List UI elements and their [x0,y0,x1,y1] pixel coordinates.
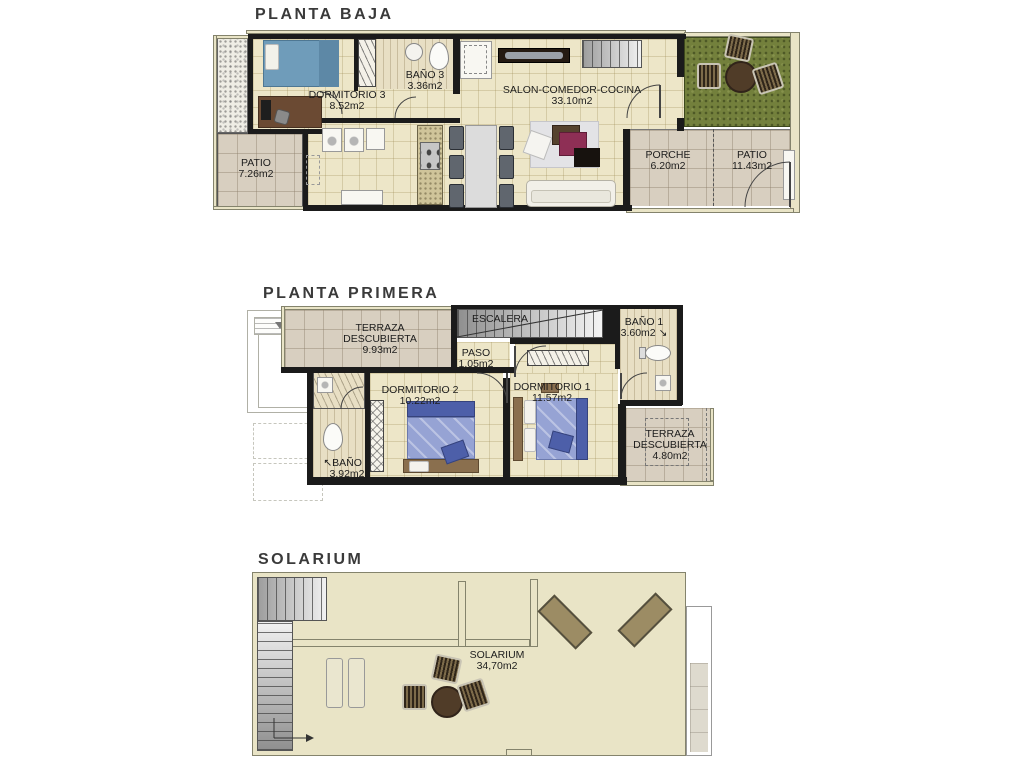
plan-planta-baja: DORMITORIO 3 8.52m2 BAÑO 3 3.36m2 SALON-… [213,30,805,218]
shower-dashed-outline [464,45,487,74]
dining-chair-icon [499,126,514,150]
porche-patio-divider [713,129,714,206]
washer-icon [322,128,342,152]
bed-blanket-fold [319,40,339,87]
exterior-wall-band [213,35,251,39]
exterior-wall-band [281,306,463,310]
room-area-line: 3.60m2 ↘ [621,328,668,339]
stairs-icon [257,621,293,751]
room-label-bano3: BAÑO 3 3.36m2 [406,70,445,92]
stairs-icon [582,40,642,68]
wall [307,369,313,481]
floor-title-planta-primera: PLANTA PRIMERA [263,285,439,303]
dining-chair-icon [449,184,464,208]
washer-icon [344,128,364,152]
gravel-strip [217,38,248,133]
dining-chair-icon [499,184,514,208]
chair-icon [431,653,463,684]
wall [615,309,620,369]
sink-icon [655,375,671,391]
tv-unit-icon [574,148,600,167]
exterior-wall-band [626,208,794,213]
bed-blanket-fold [576,398,588,460]
room-area: 3.36m2 [406,81,445,92]
room-area: 7.26m2 [238,169,273,180]
wall [248,129,326,134]
wall [623,129,630,208]
room-label-porche: PORCHE 6.20m2 [646,150,691,172]
exterior-wall-band [213,206,305,210]
floor-title-planta-baja: PLANTA BAJA [255,6,394,24]
pillow-icon [524,428,536,452]
wardrobe-icon [358,39,376,87]
sink-icon [405,43,423,61]
room-area: 33.10m2 [503,96,641,107]
sun-lounger-icon [348,658,365,708]
parapet-band [506,749,532,756]
door-opening-dashed [306,155,320,185]
parapet-band [530,579,538,647]
door-recess [783,150,795,200]
room-label-dormitorio1: DORMITORIO 1 11.57m2 [514,382,591,404]
chair-icon [402,684,427,710]
room-label-patio-left: PATIO 7.26m2 [238,158,273,180]
dining-chair-icon [449,155,464,179]
room-area: 10.22m2 [382,396,459,407]
room-area: 9.93m2 [343,345,417,356]
laundry-sink-icon [341,190,383,205]
plan-planta-primera: TERRAZA DESCUBIERTA 9.93m2 ESCALERA PASO… [245,305,720,510]
appliance-icon [366,128,385,150]
exterior-wall-band [281,306,285,372]
room-area: 1.05m2 [458,359,493,370]
room-label-bano2: ↖BAÑO 2 3.92m2 [323,458,370,480]
pillow-icon [409,461,429,472]
room-area: 34,70m2 [470,661,525,672]
wall [248,34,253,134]
wall [503,367,510,373]
roof-extension-floor [690,663,708,752]
door-swing-arrow-icon: ↘ [659,327,668,339]
room-label-paso: PASO 1.05m2 [458,348,493,370]
room-area: 6.20m2 [646,161,691,172]
bed-headboard [513,397,523,461]
room-name: ESCALERA [472,314,528,325]
room-label-terraza-der: TERRAZA DESCUBIERTA 4.80m2 [633,429,707,462]
wall [308,118,460,123]
dining-table-icon [465,125,497,208]
sofa-seat [531,190,611,203]
sink-icon [317,377,333,393]
wall [453,34,460,94]
wall [510,338,620,344]
room-label-patio-right: PATIO 11.43m2 [732,150,772,172]
exterior-wall-band [710,408,714,481]
wall [618,404,626,483]
pillow-icon [265,44,279,70]
toilet-icon [429,42,449,70]
floor-title-solarium: SOLARIUM [258,551,363,569]
exterior-wall-band [213,35,217,210]
floorplan-canvas: PLANTA BAJA PLANTA PRIMERA SOLARIUM [0,0,1024,768]
wall [248,34,686,39]
room-label-dormitorio2: DORMITORIO 2 10.22m2 [382,385,459,407]
wall [677,309,683,405]
room-label-dormitorio3: DORMITORIO 3 8.52m2 [309,90,386,112]
plan-solarium: SOLARIUM 34,70m2 [250,568,715,760]
room-area: 4.80m2 [633,451,707,462]
stairs-icon [257,577,327,621]
parapet-band [290,639,530,647]
kitchen-bar-top [505,52,563,59]
room-area: 3.60m2 [621,327,656,339]
round-table-icon [725,61,757,93]
parapet-band [458,581,466,647]
wall [503,378,510,477]
wall [677,34,684,77]
room-area: 11.43m2 [732,161,772,172]
room-area: 8.52m2 [309,101,386,112]
room-label-bano1: BAÑO 1 3.60m2 ↘ [621,317,668,339]
sun-lounger-icon [326,658,343,708]
room-area: 11.57m2 [514,393,591,404]
room-area: 3.92m2 [323,469,370,480]
toilet-icon [323,423,343,451]
toilet-icon [645,345,671,361]
dining-chair-icon [499,155,514,179]
toilet-tank [639,347,646,359]
wardrobe-icon [370,400,384,472]
chair-icon [724,34,754,63]
monitor-icon [261,100,271,120]
room-label-salon: SALON-COMEDOR-COCINA 33.10m2 [503,85,641,107]
chair-icon [697,63,721,89]
stove-icon [420,142,440,170]
dining-chair-icon [449,126,464,150]
wall [620,400,682,406]
exterior-wall-band [620,481,714,486]
room-label-escalera: ESCALERA [472,314,528,325]
wall [677,118,684,131]
room-label-solarium: SOLARIUM 34,70m2 [470,650,525,672]
closet-icon [527,350,589,366]
room-label-terraza-izq: TERRAZA DESCUBIERTA 9.93m2 [343,323,417,356]
